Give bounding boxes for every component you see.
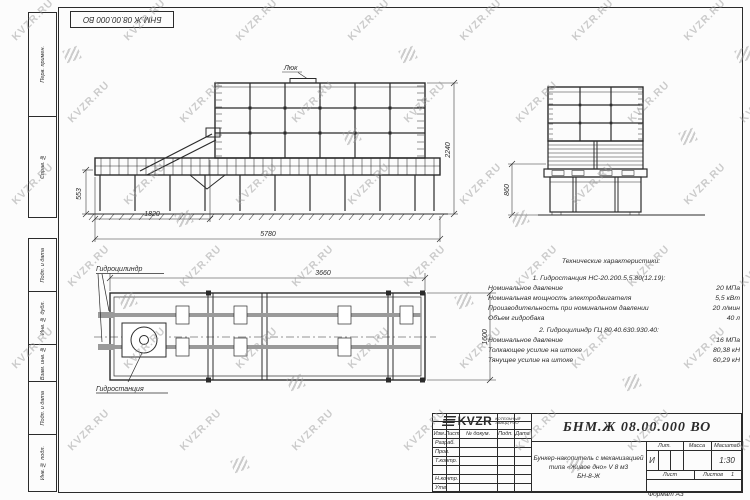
tech-specs: Технические характеристики: 1. Гидростан… [482, 258, 740, 366]
drawing-sheet: Перв. примен. Справ. № Подп. и дата Инв.… [0, 0, 750, 500]
row-razrab: Разраб. [435, 438, 459, 447]
margin-strip-bottom: Подп. и дата Инв. № дубл. Взам. инв. № П… [28, 238, 57, 492]
coil-logo-icon [441, 416, 455, 426]
margin-cell: Подп. и дата [29, 239, 56, 292]
margin-cell: Взам. инв. № [29, 345, 56, 382]
dim-5780: 5780 [260, 231, 276, 238]
row-tkontr: Т.контр. [435, 456, 459, 465]
row-prov: Пров. [435, 447, 459, 456]
spec-label: 1. Гидростанция НС-20.200.5,5.80(12.19): [527, 274, 666, 284]
spec-value: 20 МПа [716, 284, 740, 294]
spec-value: 16 МПа [716, 336, 740, 346]
spec-row: 1. Гидростанция НС-20.200.5,5.80(12.19): [482, 274, 740, 284]
margin-cell: Подп. и дата [29, 382, 56, 435]
sheets-value: 1 [731, 472, 734, 478]
tech-specs-title: Технические характеристики: [482, 258, 740, 265]
spec-value: 20 л/мин [713, 304, 740, 314]
dim-860: 860 [504, 184, 511, 196]
row-utv: Утв. [435, 483, 459, 492]
spec-label: Производительность при номинальном давле… [482, 304, 649, 314]
spec-label: Тянущее усилие на штоке [482, 356, 573, 366]
hydro-station [122, 323, 166, 357]
side-upper-grid [548, 87, 643, 141]
dim-2240: 2240 [445, 142, 452, 159]
margin-label: Подп. и дата [40, 391, 46, 425]
dim-3660: 3660 [315, 270, 331, 277]
side-view-drawing: 860 [500, 78, 710, 223]
doc-number: БНМ.Ж 08.00.000 ВО [531, 414, 743, 441]
lit-value: И [646, 450, 658, 470]
side-dimensions: 860 [504, 161, 546, 218]
row-blank [435, 465, 459, 474]
col-data: Дата [514, 429, 531, 438]
spec-label: Номинальное давление [482, 284, 563, 294]
mass-header: Масса [683, 441, 711, 450]
spec-value: 80,38 кН [713, 346, 740, 356]
margin-label: Инв. № подл. [40, 446, 46, 480]
spec-label: Объем гидробака [482, 314, 544, 324]
sheets-label: Листов [703, 472, 723, 478]
margin-cell: Перв. примен. [29, 13, 56, 117]
spec-value: 5,5 кВт [715, 294, 740, 304]
margin-strip-top: Перв. примен. Справ. № [28, 12, 57, 218]
col-podp: Подп. [497, 429, 514, 438]
desc-line: БН-8-Ж [577, 472, 600, 481]
lit-header: Лит. [646, 441, 683, 450]
tech-specs-rows: 1. Гидростанция НС-20.200.5,5.80(12.19):… [482, 274, 740, 366]
doc-description: Бункер-накопитель с механизацией типа «Ж… [531, 441, 646, 493]
dim-553: 553 [76, 188, 83, 200]
cylinder-label: Гидроцилиндр [96, 265, 143, 273]
hatch-label: Люк [283, 65, 298, 72]
margin-cell: Инв. № подл. [29, 435, 56, 491]
margin-label: Инв. № дубл. [40, 301, 46, 335]
spec-row: Номинальная мощность электродвигателя5,5… [482, 294, 740, 304]
margin-label: Справ. № [40, 154, 46, 179]
base-trough [95, 158, 440, 189]
side-slat-band [548, 141, 643, 169]
inverted-doc-number-stamp: БНМ.Ж 08.00.000 ВО [70, 11, 174, 28]
col-ndokum: № докум. [459, 429, 497, 438]
hatch: Люк [282, 65, 316, 83]
side-base [538, 169, 705, 215]
dim-1820: 1820 [144, 211, 160, 218]
support-legs [88, 175, 448, 220]
desc-line: типа «Живое дно» V 8 м3 [549, 463, 628, 472]
doc-number-inverted: БНМ.Ж 08.00.000 ВО [83, 15, 162, 24]
spec-label: Номинальное давление [482, 336, 563, 346]
spec-value: 60,29 кН [713, 356, 740, 366]
format-label: Формат А3 [648, 491, 738, 498]
spec-row: Номинальное давление20 МПа [482, 284, 740, 294]
plan-view-drawing: Гидроцилиндр Гидростанция 3660 1600 [88, 253, 503, 403]
margin-label: Перв. примен. [40, 46, 46, 83]
sheets-cell: Листов 1 [694, 470, 743, 479]
spec-row: Объем гидробака40 л [482, 314, 740, 324]
station-label: Гидростанция [96, 385, 144, 393]
spec-row: Тянущее усилие на штоке60,29 кН [482, 356, 740, 366]
spec-row: Толкающее усилие на штоке80,38 кН [482, 346, 740, 356]
margin-label: Взам. инв. № [40, 346, 46, 380]
front-upper-grid [215, 83, 425, 158]
col-list: Лист [446, 429, 459, 438]
front-view-drawing: Люк 553 [60, 58, 470, 258]
spec-label: 2. Гидроцилиндр ГЦ 80.40.630.930.40: [533, 326, 659, 336]
spec-row: Производительность при номинальном давле… [482, 304, 740, 314]
margin-cell: Справ. № [29, 117, 56, 217]
spec-label: Номинальная мощность электродвигателя [482, 294, 631, 304]
scale-header: Масштаб [711, 441, 743, 450]
spec-value: 40 л [727, 314, 740, 324]
margin-label: Подп. и дата [40, 248, 46, 282]
sheet-label: Лист [646, 470, 694, 479]
spec-label: Толкающее усилие на штоке [482, 346, 582, 356]
row-nkontr: Н.контр. [435, 474, 459, 483]
spec-row: 2. Гидроцилиндр ГЦ 80.40.630.930.40: [482, 326, 740, 336]
spec-row: Номинальное давление16 МПа [482, 336, 740, 346]
incline-conveyor [140, 128, 220, 175]
desc-line: Бункер-накопитель с механизацией [533, 454, 643, 463]
title-block: Изм. Лист № докум. Подп. Дата Разраб. Пр… [432, 413, 742, 492]
scale-value: 1:30 [711, 450, 743, 470]
margin-cell: Инв. № дубл. [29, 292, 56, 345]
